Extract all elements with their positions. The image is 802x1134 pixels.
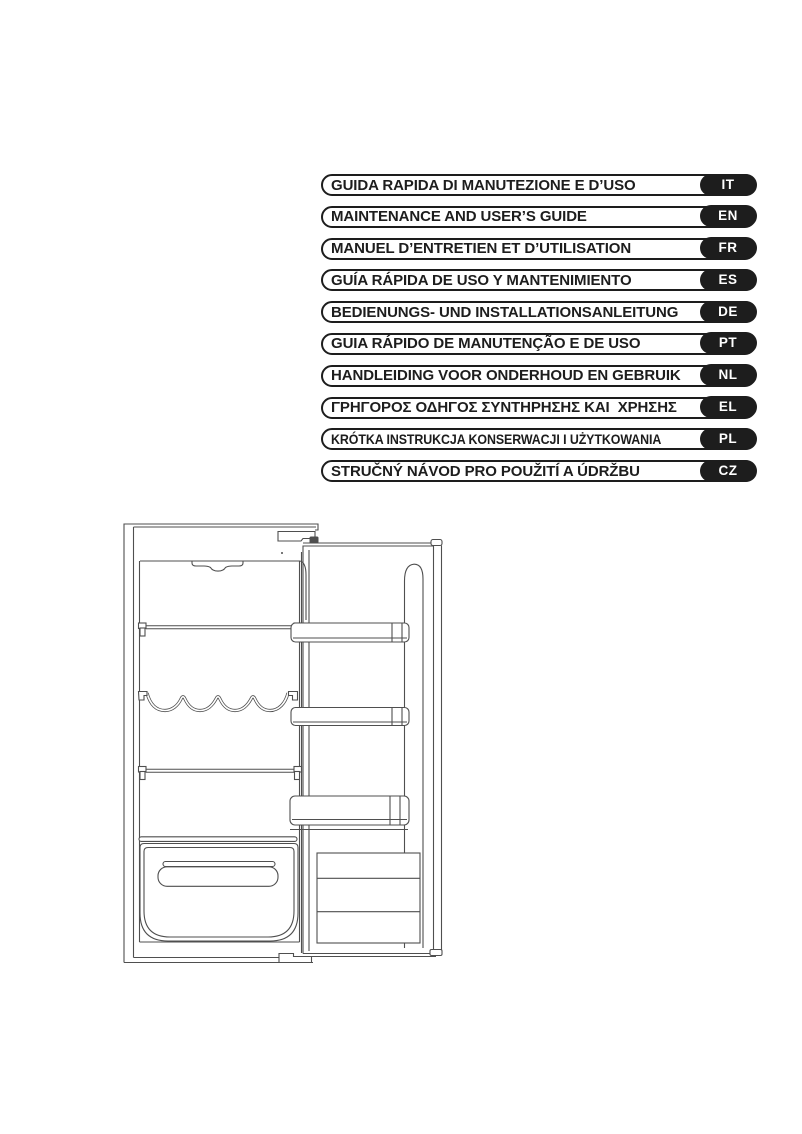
language-code-badge-de: DE <box>700 301 757 323</box>
language-title: KRÓTKA INSTRUKCJA KONSERWACJI I UŻYTKOWA… <box>331 431 661 448</box>
manual-cover-page: GUIDA RAPIDA DI MANUTEZIONE E D’USO IT M… <box>0 0 802 1134</box>
language-code-badge-pl: PL <box>700 428 757 450</box>
language-title: STRUČNÝ NÁVOD PRO POUŽITÍ A ÚDRŽBU <box>331 463 640 480</box>
language-title: GUIA RÁPIDO DE MANUTENÇÃO E DE USO <box>331 335 640 352</box>
language-row-es: GUÍA RÁPIDA DE USO Y MANTENIMIENTO ES <box>321 269 756 291</box>
language-row-fr: MANUEL D’ENTRETIEN ET D’UTILISATION FR <box>321 238 756 260</box>
language-row-de: BEDIENUNGS- UND INSTALLATIONSANLEITUNG D… <box>321 301 756 323</box>
language-code-badge-nl: NL <box>700 364 757 386</box>
language-title: GUÍA RÁPIDA DE USO Y MANTENIMIENTO <box>331 272 632 289</box>
language-row-nl: HANDLEIDING VOOR ONDERHOUD EN GEBRUIK NL <box>321 365 756 387</box>
language-title: ΓΡΗΓΟΡΟΣ ΟΔΗΓΟΣ ΣΥΝΤΗΡΗΣΗΣ ΚΑΙ ΧΡΗΣΗΣ <box>331 399 677 416</box>
language-row-it: GUIDA RAPIDA DI MANUTEZIONE E D’USO IT <box>321 174 756 196</box>
language-title: MAINTENANCE AND USER’S GUIDE <box>331 208 587 225</box>
language-row-en: MAINTENANCE AND USER’S GUIDE EN <box>321 206 756 228</box>
language-title: BEDIENUNGS- UND INSTALLATIONSANLEITUNG <box>331 304 678 321</box>
language-code-badge-el: EL <box>700 396 757 418</box>
language-code-badge-cz: CZ <box>700 460 757 482</box>
language-row-el: ΓΡΗΓΟΡΟΣ ΟΔΗΓΟΣ ΣΥΝΤΗΡΗΣΗΣ ΚΑΙ ΧΡΗΣΗΣ EL <box>321 397 756 419</box>
refrigerator-diagram <box>116 514 460 970</box>
language-code-badge-fr: FR <box>700 237 757 259</box>
language-code-badge-pt: PT <box>700 332 757 354</box>
language-row-pl: KRÓTKA INSTRUKCJA KONSERWACJI I UŻYTKOWA… <box>321 428 756 450</box>
language-title: HANDLEIDING VOOR ONDERHOUD EN GEBRUIK <box>331 367 681 384</box>
language-code-badge-en: EN <box>700 205 757 227</box>
language-code-badge-es: ES <box>700 269 757 291</box>
language-code-badge-it: IT <box>700 174 757 196</box>
language-title: GUIDA RAPIDA DI MANUTEZIONE E D’USO <box>331 177 636 194</box>
language-title: MANUEL D’ENTRETIEN ET D’UTILISATION <box>331 240 631 257</box>
language-title-list: GUIDA RAPIDA DI MANUTEZIONE E D’USO IT M… <box>321 174 756 482</box>
language-row-pt: GUIA RÁPIDO DE MANUTENÇÃO E DE USO PT <box>321 333 756 355</box>
language-row-cz: STRUČNÝ NÁVOD PRO POUŽITÍ A ÚDRŽBU CZ <box>321 460 756 482</box>
